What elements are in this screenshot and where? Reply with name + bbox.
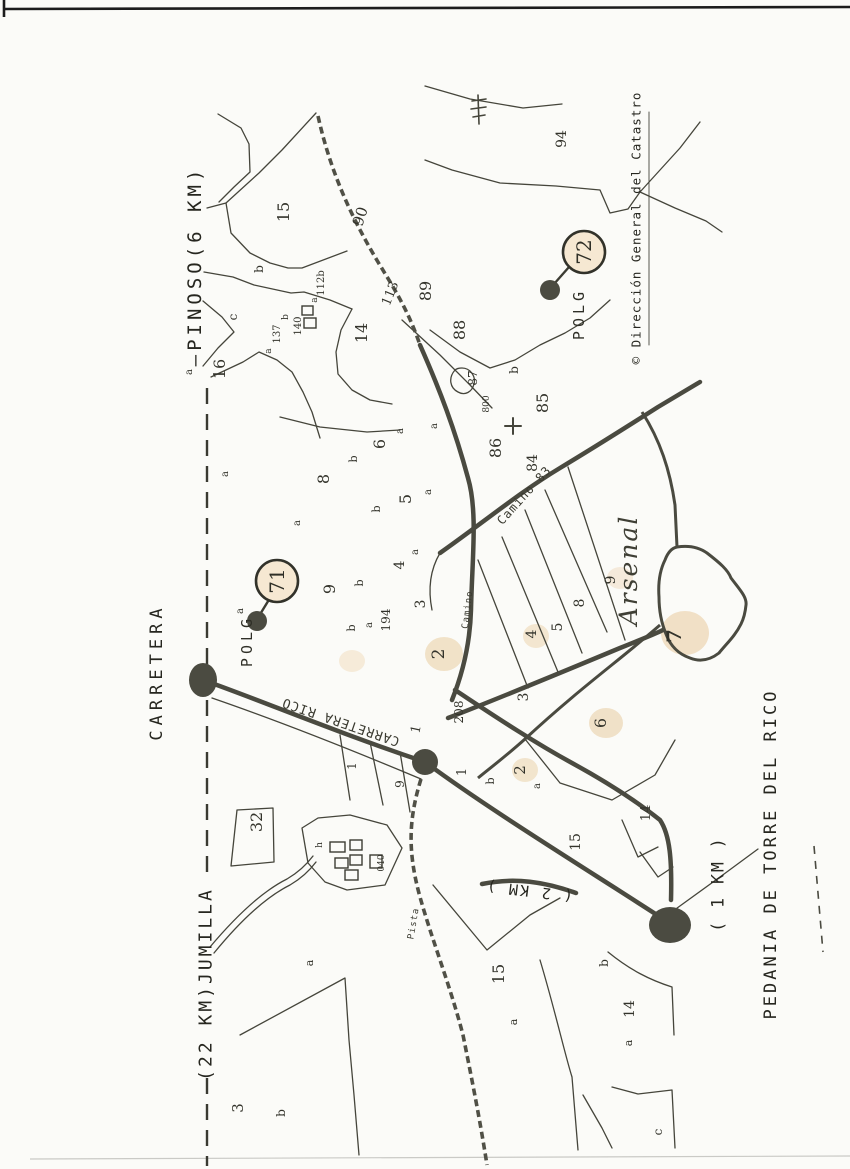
junction-node-southeast (649, 907, 691, 943)
road-parcel6 (478, 625, 660, 778)
catastro-copyright: © Dirección General del Catastro (629, 92, 644, 365)
parcel-number-label: a (429, 423, 440, 429)
parcel-number-label: 4 (392, 560, 408, 569)
parcel-number-label: 5 (550, 623, 566, 632)
parcel-number-label: 8 (572, 599, 588, 608)
parcel-number-label: a (184, 369, 195, 375)
parcel-number-label: 94 (554, 130, 570, 148)
polg-number: 71 (265, 568, 289, 593)
parcel-number-label: a (395, 428, 406, 434)
parcel-number-label: h (315, 842, 325, 848)
parcel-number-label: 7 (662, 629, 686, 643)
junction-node-center (412, 749, 438, 775)
distance-1km-caption: ( 1 KM ) (709, 836, 728, 931)
parcel-number-label: 15 (568, 833, 584, 851)
polg-label: POLG (570, 288, 588, 340)
scanned-cadastral-map-page: 71POLG72POLG 15bc16aa137b140a112b1411390… (0, 0, 850, 1169)
parcel-number-label: 1 (455, 768, 470, 776)
parcel-number-label: b (353, 579, 366, 586)
parcel-number-label: b (281, 314, 291, 320)
parcel-number-label: 2 (511, 765, 529, 775)
junction-node-west (189, 663, 217, 697)
parcel-number-label: b (274, 1109, 288, 1117)
polg-label: POLG (238, 615, 256, 667)
parcel-number-label: 2 (429, 649, 449, 660)
parcel-number-label: c (651, 1128, 665, 1135)
road-name-label: Pista (406, 907, 421, 940)
parcel-number-label: 112b (316, 270, 327, 296)
parcel-number-label: 208 (452, 701, 466, 724)
parcel-number-label: a (220, 471, 231, 477)
parcel-number-label: b (370, 505, 383, 512)
polg-marker-72: 72POLG (540, 231, 605, 340)
camino-83 (440, 382, 700, 553)
parcel-number-label: 3 (516, 693, 532, 702)
parcel-number-label: 15 (274, 202, 293, 222)
map-labels: 15bc16aa137b140a112b141139094898887800b8… (184, 130, 686, 1135)
polg-number: 72 (572, 239, 596, 264)
parcel-number-label: 88 (450, 320, 469, 340)
polg-marker-71: 71POLG (238, 560, 298, 667)
parcel-number-label: 6 (591, 718, 610, 728)
pista-road (411, 779, 487, 1165)
camino-hatched-north (318, 116, 420, 345)
parcel-number-label: 1 (345, 762, 359, 770)
parcel-number-label: c (226, 313, 240, 320)
buildings (302, 306, 402, 890)
parcel-number-label: a (310, 297, 320, 303)
parcel-number-label: 140 (293, 316, 304, 335)
parcel-number-label: a (622, 1039, 635, 1046)
parcel-number-label: 3 (229, 1103, 247, 1113)
parcel-number-label: b (484, 777, 497, 784)
parcel-number-label: a (532, 783, 543, 789)
parcel-number-label: b (345, 624, 358, 631)
parcel-number-label: 14 (639, 805, 654, 822)
parcel-number-label: 194 (379, 608, 393, 631)
parcel-number-label: 5 (396, 494, 415, 504)
road-arsenal-east (642, 412, 677, 547)
parcel-number-label: a (235, 608, 246, 614)
parcel-number-label: 137 (272, 324, 283, 343)
parcel-number-label: a (264, 348, 274, 354)
parcel-number-label: 8 (314, 474, 333, 484)
road-southeast (455, 690, 671, 900)
parcel-number-label: 6 (370, 439, 389, 449)
parcel-number-label: 32 (247, 812, 266, 832)
parcel-number-label: a (303, 959, 316, 966)
parcel-number-label: 86 (486, 438, 505, 458)
parcel-number-label: b (252, 265, 266, 273)
parcel-number-label: 3 (413, 600, 429, 609)
parcel-number-label: a (410, 549, 421, 555)
parcel-number-label: a (292, 520, 303, 526)
parcel-number-label: b (507, 366, 521, 374)
place-name-label: Arsenal (614, 515, 643, 628)
cadastral-map-canvas: 71POLG72POLG 15bc16aa137b140a112b1411390… (0, 0, 850, 1169)
carretera-caption: CARRETERA (147, 603, 167, 740)
parcel-number-label: 14 (352, 323, 371, 343)
parcel-number-label: 89 (416, 281, 435, 301)
parcel-number-label: 040 (377, 854, 387, 871)
parcel-number-label: 87 (466, 370, 480, 385)
parcel-number-label: b (347, 455, 360, 462)
scan-edge-artifacts (3, 0, 850, 1159)
pedania-caption: PEDANIA DE TORRE DEL RICO (761, 689, 781, 1020)
parcel-number-label: 4 (524, 629, 540, 638)
parcel-number-label: 16 (210, 359, 229, 379)
parcel-number-label: 90 (349, 205, 372, 229)
parcel-number-label: 1 (408, 724, 424, 735)
parcel-number-label: a (423, 489, 434, 495)
parcel-number-label: 15 (489, 964, 508, 984)
parcel-number-label: 800 (482, 395, 492, 412)
parcel-number-label: 85 (533, 393, 552, 413)
polg-point-dot (540, 280, 560, 300)
jumilla-direction-caption: (22 KM)JUMILLA (196, 887, 217, 1081)
pinoso-direction-caption: —PINOSO(6 KM) (184, 166, 206, 367)
parcel-number-label: 113 (379, 279, 402, 308)
parcel-number-label: 9 (393, 780, 407, 788)
parcel-number-label: b (597, 959, 611, 967)
parcel-number-label: 14 (622, 1000, 638, 1018)
parcel-number-label: a (364, 622, 375, 628)
parcel-number-label: a (507, 1018, 520, 1025)
parcel-number-label: 9 (320, 584, 339, 594)
